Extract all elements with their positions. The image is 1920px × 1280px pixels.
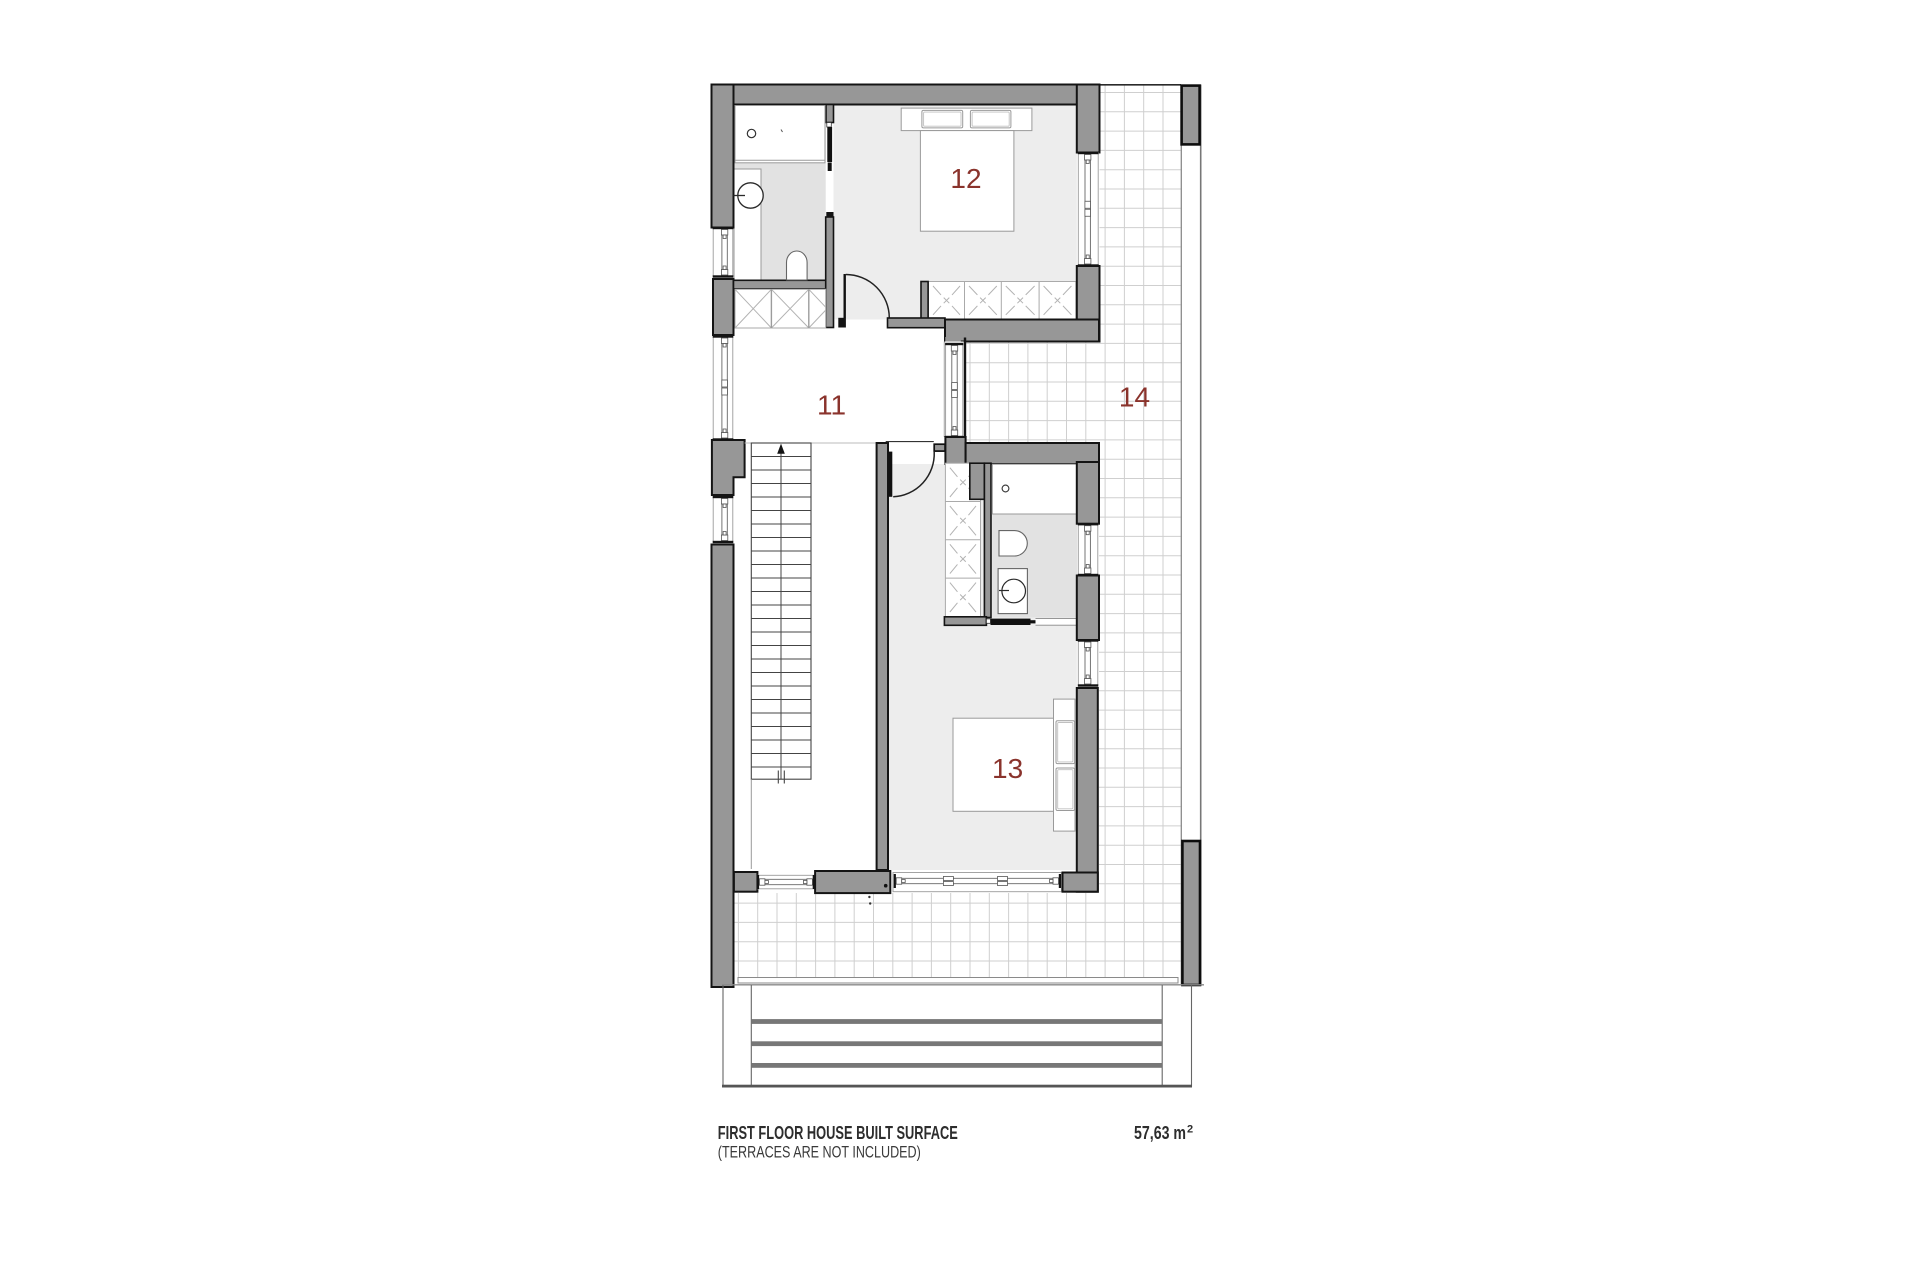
svg-text:12: 12 xyxy=(950,163,981,194)
svg-text:11: 11 xyxy=(817,390,846,421)
svg-text:FIRST FLOOR HOUSE BUILT SURFAC: FIRST FLOOR HOUSE BUILT SURFACE xyxy=(718,1122,958,1143)
svg-text:14: 14 xyxy=(1119,382,1150,413)
svg-text:2: 2 xyxy=(1187,1124,1193,1136)
svg-text:(TERRACES ARE NOT INCLUDED): (TERRACES ARE NOT INCLUDED) xyxy=(718,1144,921,1162)
svg-text:13: 13 xyxy=(992,753,1023,784)
svg-text:57,63 m: 57,63 m xyxy=(1134,1122,1186,1143)
